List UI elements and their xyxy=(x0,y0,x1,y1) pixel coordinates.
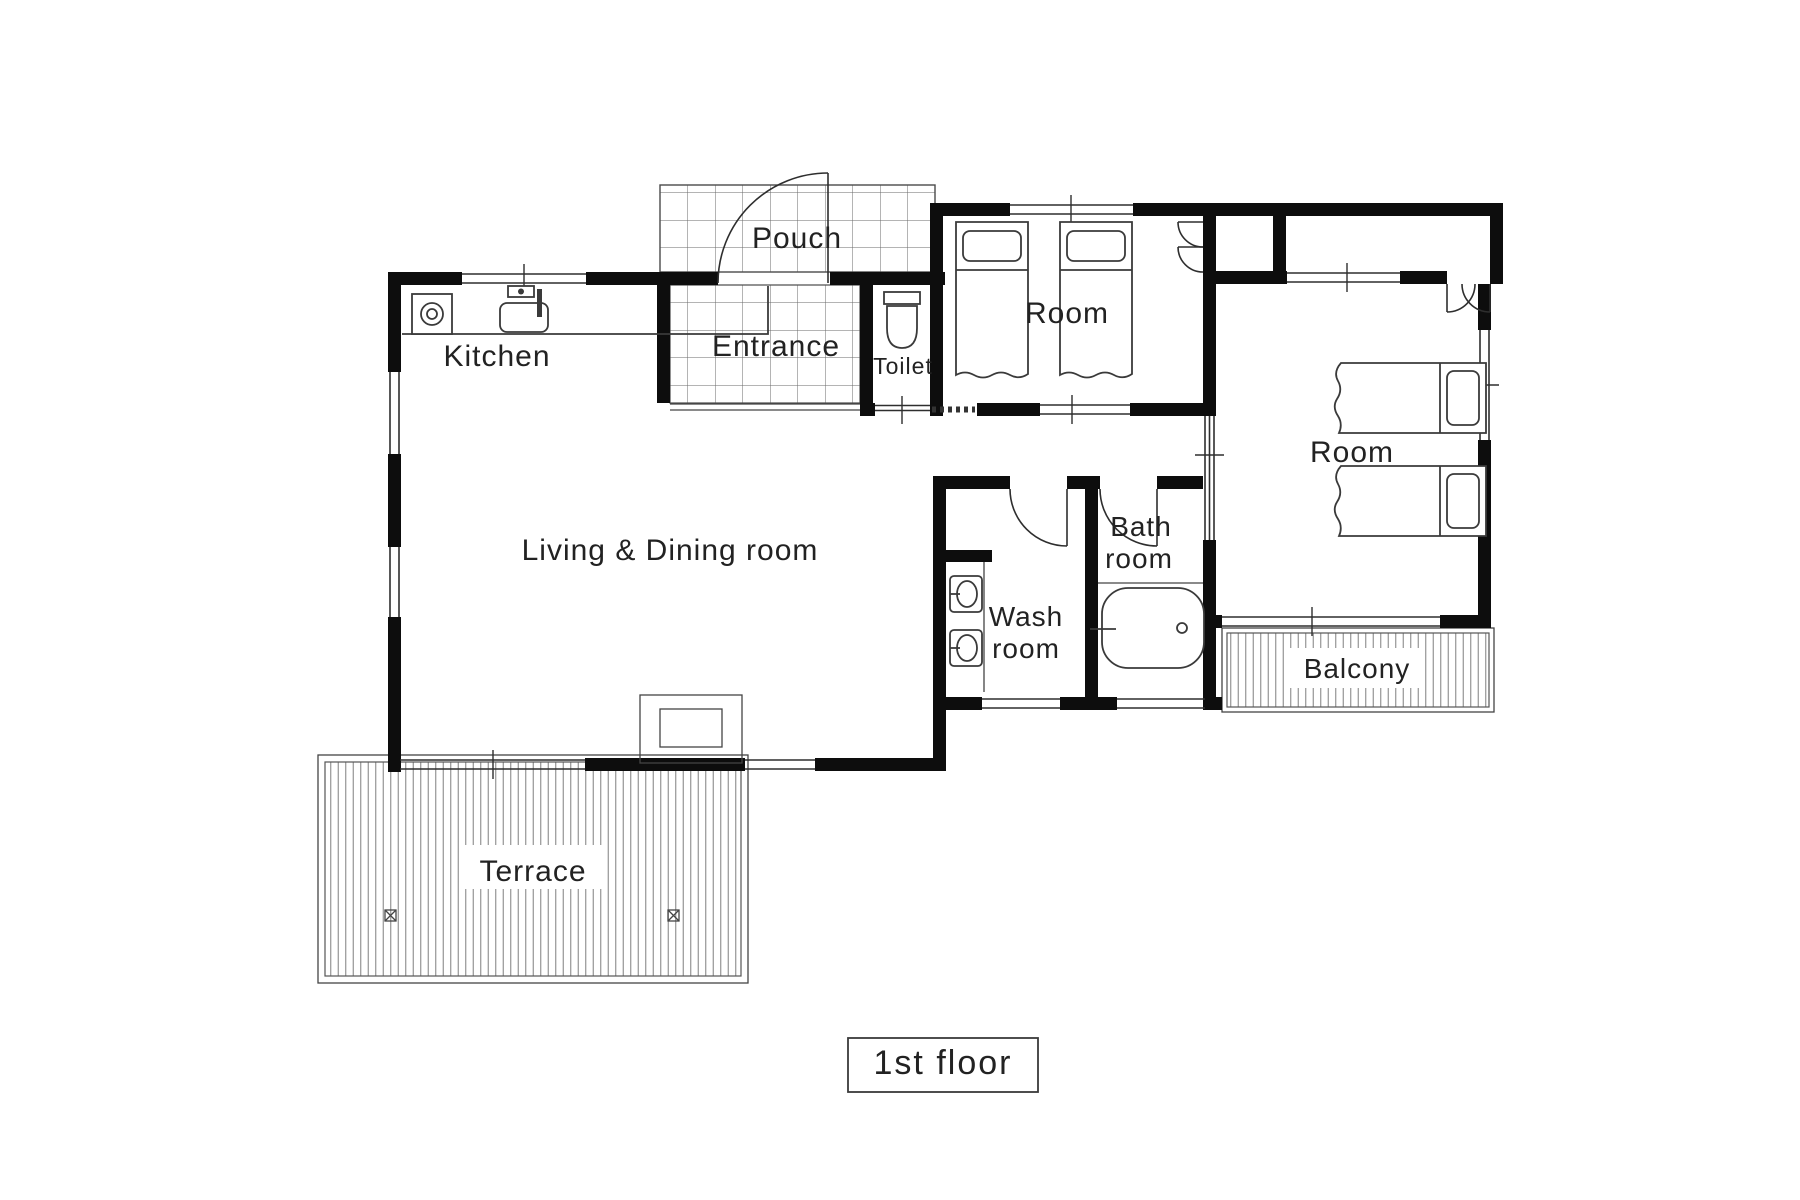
window xyxy=(1287,263,1400,292)
label-entrance: Entrance xyxy=(712,330,840,363)
toilet-sliding-door xyxy=(875,396,930,424)
window xyxy=(1117,699,1205,708)
label-wash-room-1: Wash xyxy=(989,601,1064,632)
label-balcony: Balcony xyxy=(1304,653,1411,684)
window xyxy=(1222,607,1440,636)
window xyxy=(745,760,815,769)
label-toilet: Toilet xyxy=(873,353,933,379)
single-bed-icon xyxy=(1335,363,1486,433)
label-kitchen: Kitchen xyxy=(443,340,550,373)
label-bedroom-right: Room xyxy=(1310,436,1394,469)
kitchen-sink-icon xyxy=(500,286,548,332)
label-bath-room-1: Bath xyxy=(1110,511,1172,542)
label-wash-room-2: room xyxy=(992,633,1060,664)
label-terrace: Terrace xyxy=(479,855,586,888)
single-bed-icon xyxy=(1335,466,1486,536)
floor-plan-page: Pouch Entrance Toilet Room Room Kitchen … xyxy=(0,0,1800,1200)
tv-cabinet xyxy=(640,695,742,763)
window xyxy=(1040,395,1130,424)
label-bedroom-top: Room xyxy=(1025,297,1109,330)
washroom-door-arc xyxy=(1010,489,1067,546)
label-living-dining: Living & Dining room xyxy=(522,534,819,567)
label-bath-room-2: room xyxy=(1105,543,1173,574)
single-bed-icon xyxy=(956,222,1028,378)
wash-basin-icon xyxy=(950,576,982,612)
floor-plan-canvas: Pouch Entrance Toilet Room Room Kitchen … xyxy=(0,0,1800,1200)
bathtub-icon xyxy=(1090,583,1204,668)
window xyxy=(390,372,399,454)
stove-burner-icon xyxy=(412,294,452,334)
toilet-icon xyxy=(884,292,920,348)
floor-title-label: 1st floor xyxy=(874,1044,1013,1082)
floor-title-box: 1st floor xyxy=(848,1038,1038,1092)
label-pouch: Pouch xyxy=(752,222,842,255)
wash-basin-icon xyxy=(950,630,982,666)
entrance-step xyxy=(670,404,860,410)
window xyxy=(1010,195,1133,224)
closet-bifold-door xyxy=(1178,222,1203,272)
furniture-layer xyxy=(956,222,1486,536)
window xyxy=(390,547,399,617)
window xyxy=(982,699,1060,708)
